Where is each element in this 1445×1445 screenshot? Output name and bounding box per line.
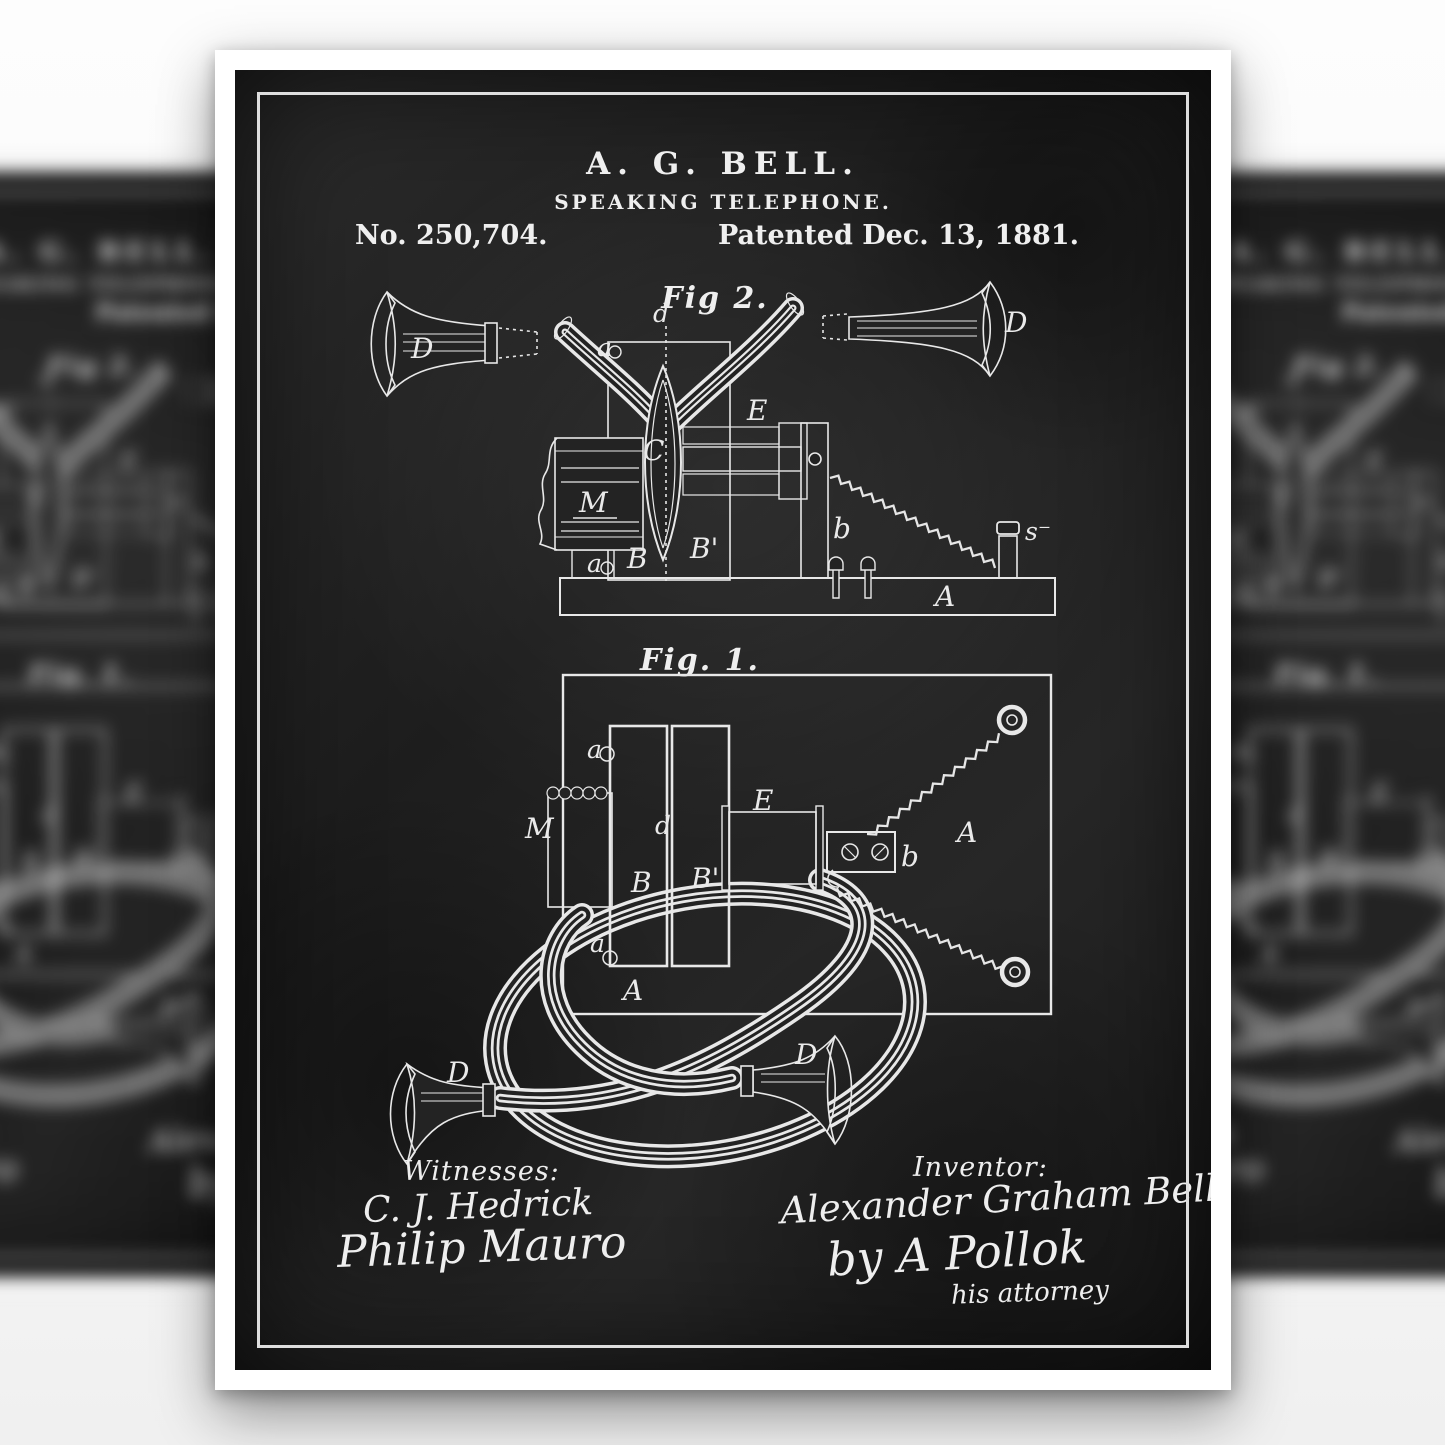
svg-text:d: d xyxy=(1286,367,1300,392)
patent-poster: A. G. BELL. SPEAKING TELEPHONE. No. 250,… xyxy=(215,50,1231,1390)
svg-text:B: B xyxy=(1267,849,1286,877)
svg-text:A: A xyxy=(1259,941,1278,969)
witnesses-heading: Witnesses: xyxy=(403,1156,560,1187)
figure-2-title: Fig 2. xyxy=(660,281,768,316)
fig1-upper-eyelet xyxy=(999,707,1025,733)
chalkboard-print-area: A. G. BELL. SPEAKING TELEPHONE. No. 250,… xyxy=(235,70,1211,1370)
fig1-label-electromagnet: E xyxy=(752,784,773,817)
svg-text:B: B xyxy=(1263,573,1282,601)
fig1-electromagnet-coil xyxy=(722,806,823,890)
fig2-horn-right xyxy=(823,282,1006,376)
fig1-label-bar-left: B xyxy=(630,866,652,899)
svg-text:B': B' xyxy=(1318,845,1343,873)
fig2-base-plate xyxy=(560,578,1055,615)
svg-text:b: b xyxy=(1439,548,1445,576)
svg-text:a: a xyxy=(1230,738,1243,763)
svg-text:d: d xyxy=(40,367,54,392)
fig2-label-top-screw: a xyxy=(597,333,612,362)
figure-1: Fig. 1. xyxy=(391,643,1052,1188)
product-mockup-page: A. G. BELL. SPEAKING TELEPHONE. No. 250,… xyxy=(0,0,1445,1445)
fig1-bar-right xyxy=(672,726,729,966)
fig2-spring-wire xyxy=(830,476,995,568)
fig2-binding-post xyxy=(997,522,1019,578)
fig2-label-support: b xyxy=(833,512,851,545)
svg-text:Fig. 1.: Fig. 1. xyxy=(1274,659,1377,689)
fig1-label-bar-right: B' xyxy=(690,862,719,895)
attorney-title: his attorney xyxy=(951,1275,1110,1310)
fig2-label-leg-left: B xyxy=(626,542,648,575)
svg-text:B': B' xyxy=(72,845,97,873)
svg-text:A: A xyxy=(13,941,32,969)
svg-text:D: D xyxy=(1406,995,1426,1023)
svg-text:E: E xyxy=(119,447,137,475)
fig2-label-diaphragm-edge: d xyxy=(653,299,669,328)
fig1-upper-spring xyxy=(867,733,999,834)
fig2-label-leg-right: B' xyxy=(689,532,718,565)
fig1-lower-eyelet xyxy=(1002,959,1028,985)
svg-text:B': B' xyxy=(71,565,96,593)
svg-text:C: C xyxy=(32,481,50,509)
figure-2: Fig 2. xyxy=(371,281,1055,615)
svg-text:E: E xyxy=(1370,779,1388,807)
svg-text:Fig 2.: Fig 2. xyxy=(1292,351,1384,381)
fig2-label-horn-left: D xyxy=(410,332,433,365)
fig1-label-top-screw: a xyxy=(587,735,602,764)
svg-text:Fig 2.: Fig 2. xyxy=(46,351,138,381)
fig2-label-binding-post: s⁻ xyxy=(1025,517,1051,546)
fig1-label-horn-right: D xyxy=(794,1038,817,1071)
fig2-magnet-leg-right xyxy=(801,423,828,578)
fig2-label-base: A xyxy=(932,580,955,613)
fig1-label-base-corner: A xyxy=(620,974,643,1007)
fig2-label-diaphragm: C xyxy=(643,434,664,467)
svg-text:E: E xyxy=(1365,447,1383,475)
svg-text:B: B xyxy=(21,849,40,877)
svg-text:B': B' xyxy=(1317,565,1342,593)
svg-text:D: D xyxy=(160,995,180,1023)
fig2-label-electromagnet: E xyxy=(746,394,767,427)
figure-1-title: Fig. 1. xyxy=(639,643,760,678)
svg-text:B: B xyxy=(17,573,36,601)
fig1-bar-left xyxy=(610,726,667,966)
fig1-mouthpiece-coil xyxy=(547,787,612,907)
fig2-horn-left xyxy=(371,292,537,396)
fig1-label-diaphragm-edge: d xyxy=(655,811,671,840)
svg-text:d: d xyxy=(1288,802,1302,827)
svg-text:E: E xyxy=(124,779,142,807)
svg-text:Fig. 1.: Fig. 1. xyxy=(28,659,131,689)
fig1-label-junction: b xyxy=(901,840,919,873)
fig2-label-bottom-screw: a xyxy=(587,549,602,578)
svg-text:b: b xyxy=(193,548,208,576)
fig1-label-base-plate: A xyxy=(954,816,977,849)
fig1-label-bottom-screw: a xyxy=(590,929,605,958)
fig1-label-mouthpiece-coil: M xyxy=(524,812,555,845)
fig1-label-horn-left: D xyxy=(446,1056,469,1089)
fig1-horn-left xyxy=(391,1064,496,1164)
fig2-label-horn-right: D xyxy=(1004,306,1027,339)
witness-signature-2: Philip Mauro xyxy=(336,1217,627,1278)
svg-text:a: a xyxy=(1233,903,1246,928)
svg-text:C: C xyxy=(1278,481,1296,509)
fig2-label-mouthpiece: M xyxy=(578,486,609,519)
svg-text:a: a xyxy=(1230,580,1243,605)
svg-text:d: d xyxy=(42,802,56,827)
